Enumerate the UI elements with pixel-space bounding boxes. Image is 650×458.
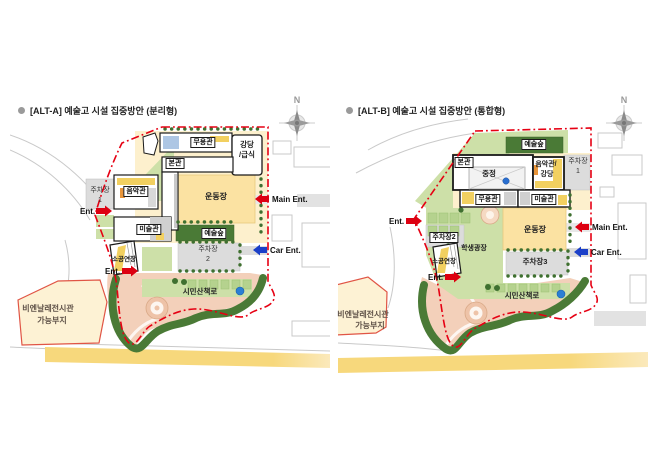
label-music-hall: 음악관 xyxy=(123,186,148,197)
alt-b-roundabout xyxy=(465,302,487,324)
label-parking2-2: 2 xyxy=(206,256,210,264)
alt-b-tree xyxy=(485,284,491,290)
label-small-theater: 소공연장 xyxy=(432,258,456,265)
label-biennale-2: 가능부지 xyxy=(355,322,384,331)
alt-a-compass-icon xyxy=(279,105,315,141)
label-music-auditorium-2: 강당 xyxy=(541,171,554,179)
label-music-auditorium-1: 음악관/ xyxy=(535,161,556,169)
panel-a-title-row: [ALT-A] 예술고 시설 집중방안 (분리형) xyxy=(18,104,177,117)
label-main-building: 본관 xyxy=(455,157,474,168)
panel-title: [ALT-B] 예술고 시설 집중방안 (통합형) xyxy=(358,104,505,117)
panel-alt-b: [ALT-B] 예술고 시설 집중방안 (통합형) N 예술숲 본관 중정 음악… xyxy=(338,95,650,407)
label-sports-field: 운동장 xyxy=(205,193,227,202)
label-dance-hall: 무용관 xyxy=(190,137,215,148)
alt-b-tree xyxy=(494,285,500,291)
label-parking3: 주차장3 xyxy=(523,258,548,266)
alt-b-plaza-circle xyxy=(481,206,499,224)
alt-b-courtyard xyxy=(469,167,525,189)
label-main-ent: Main Ent. xyxy=(272,195,308,204)
alt-a-tree xyxy=(172,278,178,284)
label-parking1-1: 주차장 xyxy=(568,158,587,166)
label-dance-hall: 무용관 xyxy=(475,194,500,205)
page: { "page": {"background": "#ffffff"}, "co… xyxy=(0,0,650,458)
label-biennale-2: 가능부지 xyxy=(37,317,66,326)
label-ent-left: Ent. xyxy=(389,217,404,226)
label-parking1-2: 1 xyxy=(576,168,580,176)
alt-b-compass-icon xyxy=(606,105,642,141)
label-ent-bottom: Ent. xyxy=(428,273,443,282)
label-art-hall: 미술관 xyxy=(136,224,161,235)
alt-a-roundabout xyxy=(146,297,168,319)
alt-a-tree xyxy=(181,279,187,285)
label-car-ent: Car Ent. xyxy=(591,248,622,257)
panel-title: [ALT-A] 예술고 시설 집중방안 (분리형) xyxy=(30,104,177,117)
panel-bullet xyxy=(346,107,353,114)
label-art-forest: 예술숲 xyxy=(201,228,226,239)
alt-b-ent-left-arrow xyxy=(406,216,422,227)
label-car-ent: Car Ent. xyxy=(270,246,301,255)
label-parking1-2: 1 xyxy=(98,197,102,205)
alt-a-pond xyxy=(236,287,244,295)
label-biennale-1: 비엔날레전시관 xyxy=(22,305,74,314)
label-citizen-path: 시민산책로 xyxy=(505,292,540,300)
label-art-hall: 미술관 xyxy=(531,194,556,205)
label-courtyard: 중정 xyxy=(482,170,496,178)
compass-n-label: N xyxy=(621,95,628,105)
label-parking1-1: 주차장 xyxy=(90,187,109,195)
label-main-building: 본관 xyxy=(166,158,185,169)
alt-b-road-yellow xyxy=(338,352,648,373)
panel-bullet xyxy=(18,107,25,114)
label-auditorium-2: /급식 xyxy=(239,151,255,159)
label-ent-bottom: Ent. xyxy=(105,267,120,276)
panel-b-title-row: [ALT-B] 예술고 시설 집중방안 (통합형) xyxy=(346,104,505,117)
compass-n-label: N xyxy=(294,95,301,105)
label-citizen-path: 시민산책로 xyxy=(183,288,218,296)
alt-b-bush xyxy=(458,207,463,212)
label-student-plaza: 학생광장 xyxy=(461,245,487,253)
label-parking2-1: 주차장 xyxy=(198,246,217,254)
panel-alt-a: [ALT-A] 예술고 시설 집중방안 (분리형) N 무용관 강당 /급식 본… xyxy=(10,95,330,407)
label-parking2: 주차장2 xyxy=(429,232,458,243)
label-biennale-1: 비엔날레전시관 xyxy=(337,311,389,320)
label-small-theater: 소공연장 xyxy=(112,256,136,263)
label-auditorium-1: 강당 xyxy=(240,141,254,149)
label-art-forest: 예술숲 xyxy=(521,139,546,150)
label-main-ent: Main Ent. xyxy=(592,223,628,232)
alt-b-pond xyxy=(557,290,565,298)
label-ent-left: Ent. xyxy=(80,207,95,216)
label-sports-field: 운동장 xyxy=(524,226,546,235)
